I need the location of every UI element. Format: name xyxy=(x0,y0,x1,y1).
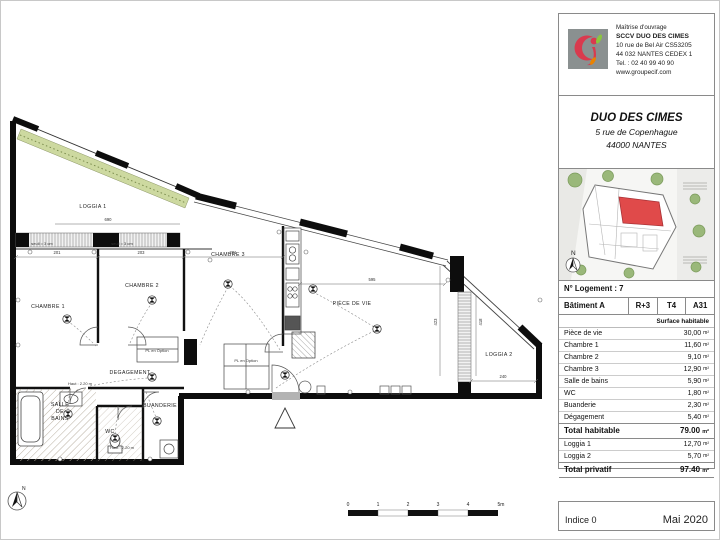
area-row: Chambre 111,60 m² xyxy=(559,340,714,352)
indice: Indice 0 xyxy=(565,515,597,525)
svg-text:SALLE: SALLE xyxy=(51,402,69,408)
north-compass: N xyxy=(8,486,26,510)
area-row: Salle de bains5,90 m² xyxy=(559,376,714,388)
room-label-piece-de-vie: PIÈCE DE VIE xyxy=(333,300,372,307)
area-row: Buanderie2,30 m² xyxy=(559,400,714,412)
laundry-machine xyxy=(160,440,178,458)
total-privatif-row: Total privatif97.40 m² xyxy=(559,462,714,478)
svg-text:N: N xyxy=(22,486,26,492)
room-label-chambre1: CHAMBRE 1 xyxy=(31,304,65,310)
dim-423: 423 xyxy=(433,318,438,326)
room-label-chambre2: CHAMBRE 2 xyxy=(125,283,159,289)
owner-address2: 44 032 NANTES CEDEX 1 xyxy=(616,50,712,59)
owner-website[interactable]: www.groupecif.com xyxy=(616,68,712,77)
owner-phone: Tel. : 02 40 99 40 90 xyxy=(616,59,712,68)
dim-201a: 201 xyxy=(54,250,62,255)
unit-ref: A31 xyxy=(685,298,714,314)
annotation-haut-2: Haut : 2.20 m xyxy=(110,445,135,450)
project-name: DUO DES CIMES xyxy=(559,112,714,124)
owner-label: Maîtrise d'ouvrage xyxy=(616,23,712,32)
room-label-buanderie: BUANDERIE xyxy=(143,403,177,409)
type: T4 xyxy=(657,298,686,314)
area-row: Chambre 312,90 m² xyxy=(559,364,714,376)
dim-201b: 201 xyxy=(230,250,238,255)
title-block: Maîtrise d'ouvrage SCCV DUO DES CIMES 10… xyxy=(558,14,715,469)
room-label-loggia2: LOGGIA 2 xyxy=(485,352,512,358)
date: Mai 2020 xyxy=(663,514,708,526)
project-address2: 44000 NANTES xyxy=(559,140,714,150)
annotation-pl-option-2: PL en Option xyxy=(234,358,257,363)
loggia-row: Loggia 112,70 m² xyxy=(559,439,714,451)
dim-690: 690 xyxy=(105,217,113,222)
loggia2-sliding-bay xyxy=(450,256,471,395)
site-plan-map: N xyxy=(559,169,714,280)
etage: R+3 xyxy=(628,298,657,314)
svg-text:DE: DE xyxy=(56,409,64,415)
site-plan-block: N xyxy=(558,168,715,281)
owner-name: SCCV DUO DES CIMES xyxy=(616,32,712,41)
svg-text:2: 2 xyxy=(407,502,410,508)
svg-text:1: 1 xyxy=(377,502,380,508)
room-label-wc: WC xyxy=(105,429,114,435)
svg-text:3: 3 xyxy=(437,502,440,508)
highlighted-unit xyxy=(619,197,663,226)
closet-2 xyxy=(224,344,269,389)
scale-bar: 0 1 2 3 4 5m xyxy=(347,502,505,516)
svg-text:0: 0 xyxy=(347,502,350,508)
logement-number: N° Logement : 7 xyxy=(559,281,714,298)
dim-418: 418 xyxy=(478,318,483,326)
duct xyxy=(184,339,197,365)
areas-table: N° Logement : 7 Bâtiment A R+3 T4 A31 Su… xyxy=(558,280,715,469)
batiment: Bâtiment A xyxy=(559,298,628,314)
annotation-pl-option-1: PL en Option xyxy=(145,348,168,353)
dim-595: 595 xyxy=(369,277,377,282)
unit-identity-row: Bâtiment A R+3 T4 A31 xyxy=(559,298,714,315)
project-block: DUO DES CIMES 5 rue de Copenhague 44000 … xyxy=(558,95,715,169)
area-row: Pièce de vie30,00 m² xyxy=(559,328,714,340)
area-row: Chambre 29,10 m² xyxy=(559,352,714,364)
footer-block: Indice 0 Mai 2020 xyxy=(558,501,715,531)
owner-block: Maîtrise d'ouvrage SCCV DUO DES CIMES 10… xyxy=(558,13,715,96)
kitchen xyxy=(284,228,315,358)
svg-text:5m: 5m xyxy=(498,502,505,508)
annotation-seuil-1: seuil = 3 cm xyxy=(31,241,53,246)
svg-text:BAINS: BAINS xyxy=(51,416,69,422)
annotation-seuil-2: seuil = 3 cm xyxy=(111,241,133,246)
furniture-marks xyxy=(299,381,411,394)
svg-text:4: 4 xyxy=(467,502,470,508)
dim-203: 203 xyxy=(138,250,146,255)
groupe-cif-logo xyxy=(566,27,610,71)
room-label-chambre3: CHAMBRE 3 xyxy=(211,252,245,258)
bathtub xyxy=(18,392,43,446)
area-row: WC1,80 m² xyxy=(559,388,714,400)
project-address1: 5 rue de Copenhague xyxy=(559,127,714,137)
room-label-degagement: DEGAGEMENT xyxy=(110,370,151,376)
annotation-haut-1: Haut : 2.20 m xyxy=(68,381,93,386)
total-habitable-row: Total habitable79.00 m² xyxy=(559,423,714,439)
loggia1-edge xyxy=(13,119,199,208)
svg-text:N: N xyxy=(571,250,576,257)
surface-header: Surface habitable xyxy=(559,315,714,328)
owner-address1: 10 rue de Bel Air CS53205 xyxy=(616,41,712,50)
room-label-loggia1: LOGGIA 1 xyxy=(79,204,106,210)
dim-240: 240 xyxy=(500,374,508,379)
